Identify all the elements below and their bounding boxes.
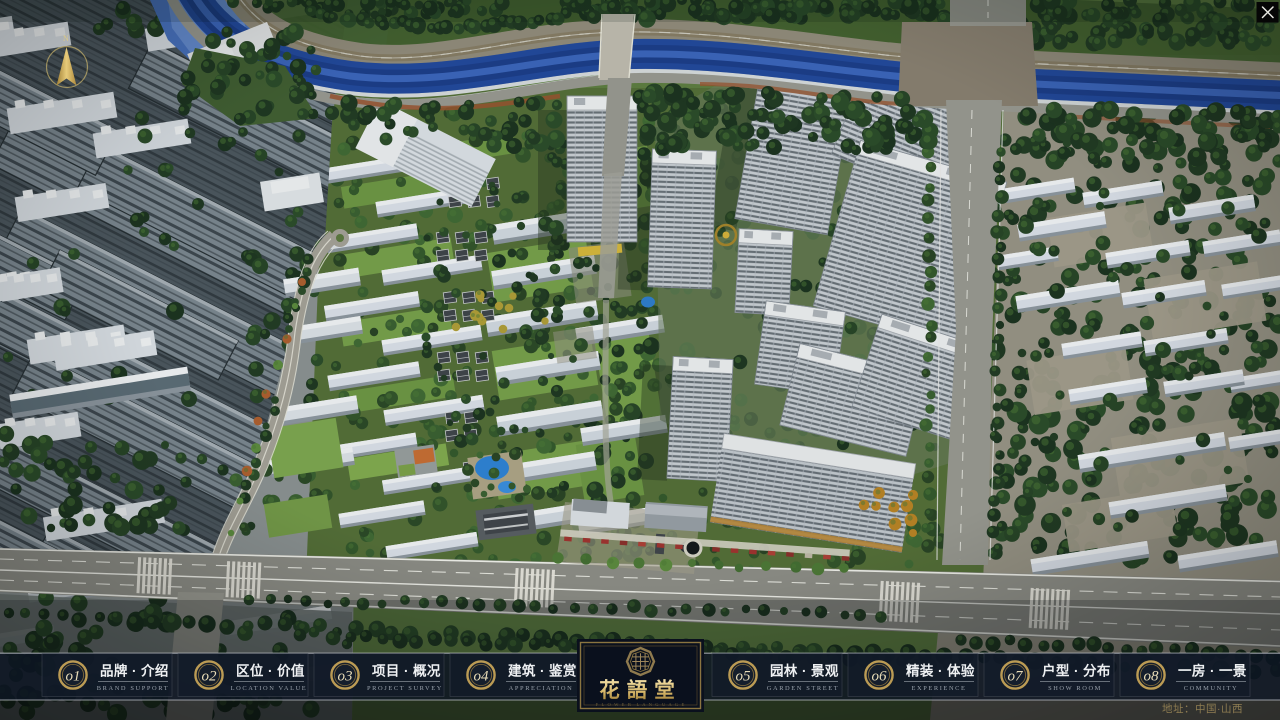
svg-text:项目 · 概况: 项目 · 概况 xyxy=(372,663,441,679)
svg-text:o2: o2 xyxy=(202,669,218,685)
svg-text:户型 · 分布: 户型 · 分布 xyxy=(1042,663,1111,679)
svg-text:一房 · 一景: 一房 · 一景 xyxy=(1178,663,1247,679)
svg-text:APPRECIATION: APPRECIATION xyxy=(509,685,574,692)
svg-text:o3: o3 xyxy=(338,669,353,685)
svg-text:地址：中国·山西: 地址：中国·山西 xyxy=(1162,702,1243,715)
svg-text:GARDEN STREET: GARDEN STREET xyxy=(767,685,839,692)
svg-text:F L O W E R L A N G U A G E: F L O W E R L A N G U A G E xyxy=(596,702,686,707)
svg-text:品牌 · 介绍: 品牌 · 介绍 xyxy=(100,663,169,679)
svg-text:o1: o1 xyxy=(66,669,81,685)
svg-text:o8: o8 xyxy=(1144,669,1160,685)
svg-text:o5: o5 xyxy=(736,669,752,685)
svg-text:区位 · 价值: 区位 · 价值 xyxy=(236,663,305,679)
svg-text:o6: o6 xyxy=(872,669,888,685)
svg-text:建筑 · 鉴赏: 建筑 · 鉴赏 xyxy=(507,663,577,679)
svg-text:精装 · 体验: 精装 · 体验 xyxy=(906,663,975,679)
svg-text:o7: o7 xyxy=(1008,669,1025,685)
svg-text:园林 · 景观: 园林 · 景观 xyxy=(770,663,839,679)
svg-text:BRAND SUPPORT: BRAND SUPPORT xyxy=(97,685,169,692)
svg-text:COMMUNITY: COMMUNITY xyxy=(1184,685,1239,692)
svg-text:SHOW ROOM: SHOW ROOM xyxy=(1048,685,1102,692)
svg-text:EXPERIENCE: EXPERIENCE xyxy=(911,685,966,692)
svg-text:花語堂: 花語堂 xyxy=(599,678,682,702)
svg-text:o4: o4 xyxy=(474,669,490,685)
svg-text:N: N xyxy=(63,34,69,43)
svg-text:PROJECT SURVEY: PROJECT SURVEY xyxy=(367,685,443,692)
svg-text:LOCATION VALUE: LOCATION VALUE xyxy=(231,685,308,692)
